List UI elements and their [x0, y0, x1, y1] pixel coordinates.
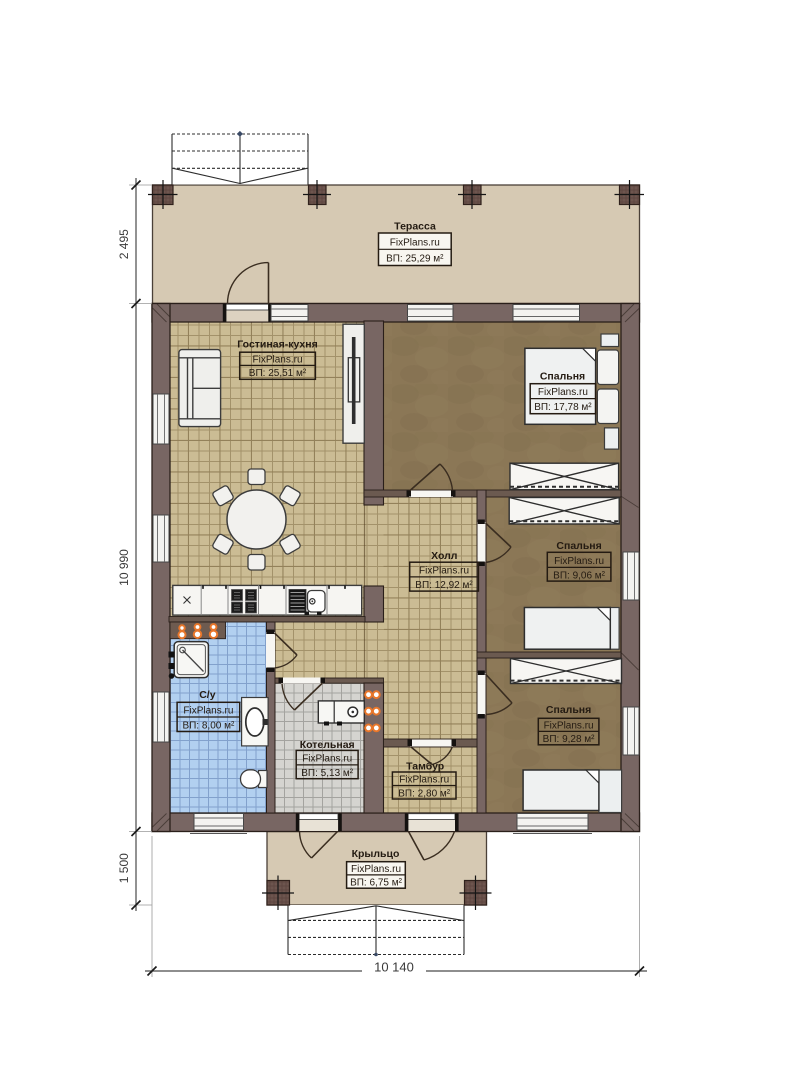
- svg-text:FixPlans.ru: FixPlans.ru: [419, 566, 469, 577]
- svg-text:ВП: 6,75 м²: ВП: 6,75 м²: [350, 878, 403, 889]
- svg-text:FixPlans.ru: FixPlans.ru: [351, 864, 401, 875]
- svg-text:ВП: 9,06 м²: ВП: 9,06 м²: [553, 570, 606, 581]
- svg-text:Спальня: Спальня: [546, 704, 591, 716]
- svg-text:1 500: 1 500: [117, 853, 131, 883]
- svg-text:FixPlans.ru: FixPlans.ru: [183, 706, 233, 717]
- svg-text:ВП: 5,13 м²: ВП: 5,13 м²: [301, 768, 354, 779]
- svg-text:Терасса: Терасса: [394, 221, 436, 233]
- svg-text:FixPlans.ru: FixPlans.ru: [252, 354, 302, 365]
- svg-text:Холл: Холл: [431, 550, 457, 562]
- svg-text:ВП: 17,78 м²: ВП: 17,78 м²: [534, 402, 592, 413]
- svg-text:FixPlans.ru: FixPlans.ru: [390, 238, 440, 249]
- svg-text:FixPlans.ru: FixPlans.ru: [544, 720, 594, 731]
- svg-text:ВП: 12,92 м²: ВП: 12,92 м²: [415, 580, 473, 591]
- svg-text:ВП: 8,00 м²: ВП: 8,00 м²: [182, 720, 235, 731]
- svg-text:ВП: 2,80 м²: ВП: 2,80 м²: [398, 788, 451, 799]
- svg-text:С/у: С/у: [199, 689, 216, 701]
- svg-text:ВП: 25,51 м²: ВП: 25,51 м²: [249, 368, 307, 379]
- svg-text:10 990: 10 990: [117, 549, 131, 586]
- svg-text:FixPlans.ru: FixPlans.ru: [302, 754, 352, 765]
- svg-text:Тамбур: Тамбур: [406, 761, 444, 773]
- svg-text:Котельная: Котельная: [300, 739, 355, 751]
- svg-text:Спальня: Спальня: [540, 371, 585, 383]
- svg-text:FixPlans.ru: FixPlans.ru: [399, 775, 449, 786]
- svg-text:ВП: 9,28 м²: ВП: 9,28 м²: [543, 734, 596, 745]
- svg-text:FixPlans.ru: FixPlans.ru: [538, 387, 588, 398]
- svg-text:10 140: 10 140: [374, 960, 414, 975]
- svg-text:2 495: 2 495: [117, 229, 131, 259]
- svg-text:Гостиная-кухня: Гостиная-кухня: [237, 339, 317, 351]
- svg-text:Крыльцо: Крыльцо: [352, 848, 400, 860]
- svg-text:Спальня: Спальня: [556, 540, 601, 552]
- svg-text:ВП: 25,29 м²: ВП: 25,29 м²: [386, 254, 444, 265]
- svg-text:FixPlans.ru: FixPlans.ru: [554, 556, 604, 567]
